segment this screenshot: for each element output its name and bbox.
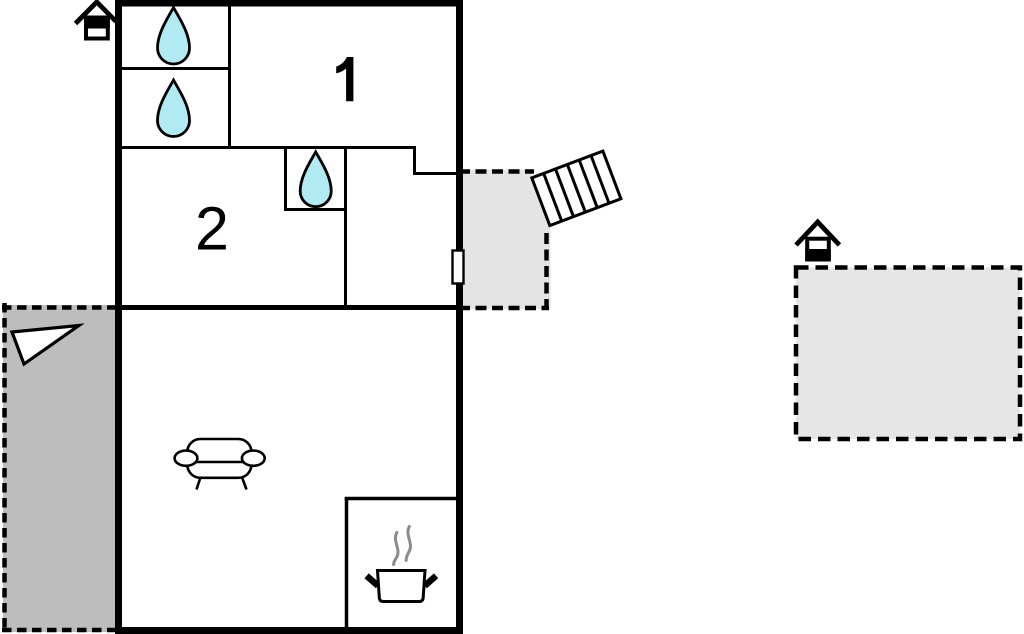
- svg-text:2: 2: [195, 195, 229, 263]
